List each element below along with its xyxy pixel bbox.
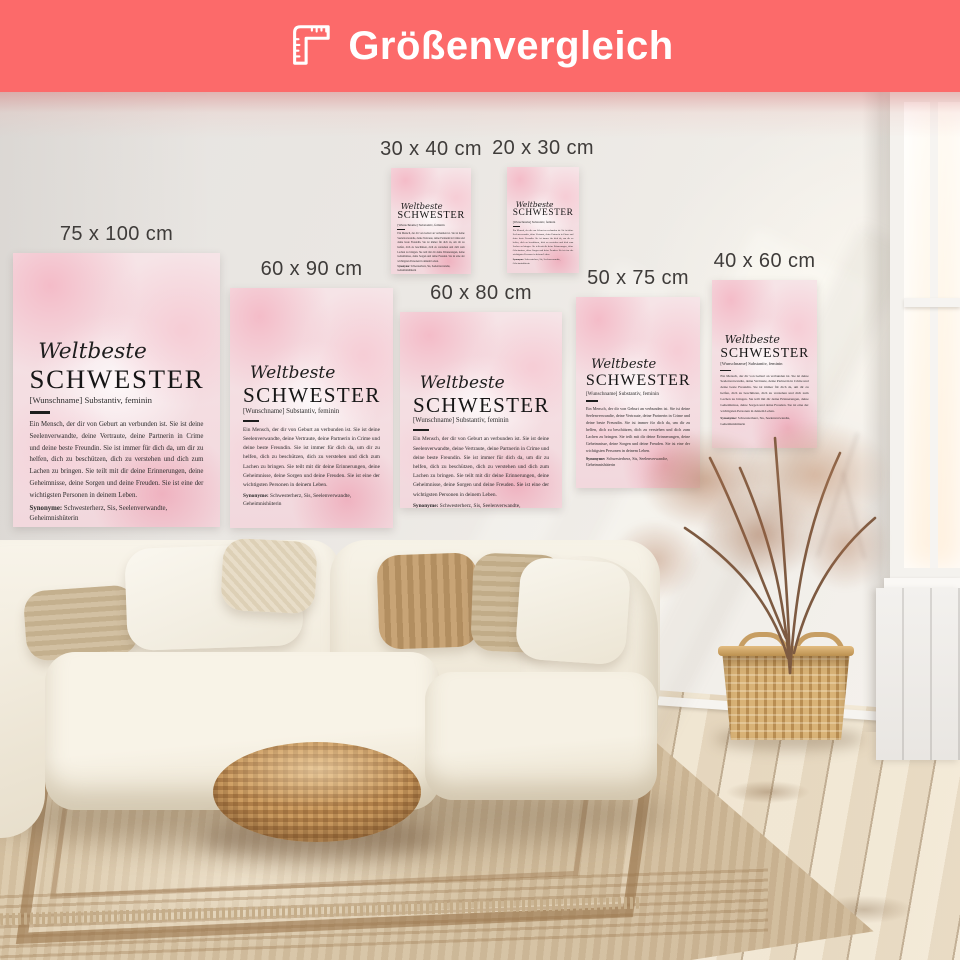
poster-20x30: Weltbeste SCHWESTER [Wunschname] Substan… [507, 167, 579, 273]
poster-definition-text: Ein Mensch, der dir von Geburt an verbun… [397, 232, 464, 264]
size-label: 20 x 30 cm [471, 137, 615, 160]
poster-main-title: SCHWESTER [720, 346, 808, 360]
poster-script-title: Weltbeste [725, 334, 809, 345]
throw-pillow-beige [470, 552, 563, 653]
size-label: 75 x 100 cm [0, 223, 324, 246]
poster-subtitle: [Wunschname] Substantiv, feminin [586, 391, 690, 397]
poster-subtitle: [Wunschname] Substantiv, feminin [413, 417, 549, 424]
poster-subtitle: [Wunschname] Substantiv, feminin [397, 223, 464, 227]
poster-synonyms: Synonyme: Schwesterherz, Sis, Seelenverw… [413, 502, 549, 508]
poster-subtitle: [Wunschname] Substantiv, feminin [513, 220, 574, 224]
header-glow [0, 92, 960, 138]
header-bar: Größenvergleich [0, 0, 960, 92]
poster-definition-text: Ein Mensch, der dir von Geburt an verbun… [30, 419, 204, 501]
poster-main-title: SCHWESTER [397, 211, 464, 222]
page-title: Größenvergleich [348, 24, 673, 69]
poster-synonyms: Synonyme: Schwesterherz, Sis, Seelenverw… [30, 504, 204, 524]
poster-definition-text: Ein Mensch, der dir von Geburt an verbun… [413, 435, 549, 499]
folding-ruler-icon [286, 19, 332, 74]
poster-synonyms: Synonyme: Schwesterherz, Sis, Seelenverw… [513, 258, 574, 265]
poster-60x90: Weltbeste SCHWESTER [Wunschname] Substan… [230, 288, 393, 528]
poster-script-title: Weltbeste [516, 201, 573, 209]
poster-script-title: Weltbeste [250, 365, 380, 382]
throw-pillow-cream [220, 538, 318, 615]
throw-pillow-caramel [376, 552, 479, 649]
size-label: 40 x 60 cm [660, 250, 870, 273]
throw-pillow-beige [23, 584, 140, 662]
poster-divider [243, 420, 259, 422]
poster-30x40: Weltbeste SCHWESTER [Wunschname] Substan… [391, 168, 471, 274]
poster-60x80: Weltbeste SCHWESTER [Wunschname] Substan… [400, 312, 562, 508]
poster-divider [397, 229, 405, 230]
poster-divider [513, 226, 520, 227]
poster-divider [413, 429, 429, 431]
poster-main-title: SCHWESTER [513, 209, 574, 219]
window-mullion [904, 298, 960, 307]
sofa-backrest [0, 540, 340, 710]
throw-pillow-white [124, 543, 303, 651]
poster-75x100: Weltbeste SCHWESTER [Wunschname] Substan… [13, 253, 220, 527]
poster-synonyms: Synonyme: Schwesterherz, Sis, Seelenverw… [243, 492, 380, 508]
poster-subtitle: [Wunschname] Substantiv, feminin [30, 395, 204, 405]
poster-definition-text: Ein Mensch, der dir von Geburt an verbun… [513, 229, 574, 258]
poster-script-title: Weltbeste [38, 341, 203, 363]
poster-main-title: SCHWESTER [30, 365, 204, 393]
size-comparison-mockup: Größenvergleich 75 x 100 cm Weltbeste SC… [0, 0, 960, 960]
rattan-pouf [213, 742, 421, 842]
poster-script-title: Weltbeste [420, 375, 549, 392]
dried-plant [590, 398, 910, 678]
poster-script-title: Weltbeste [591, 358, 690, 371]
poster-main-title: SCHWESTER [413, 394, 549, 416]
poster-subtitle: [Wunschname] Substantiv, feminin [720, 361, 808, 366]
poster-main-title: SCHWESTER [586, 373, 690, 390]
poster-synonyms: Synonyme: Schwesterherz, Sis, Seelenverw… [397, 265, 464, 273]
poster-main-title: SCHWESTER [243, 384, 380, 406]
poster-script-title: Weltbeste [401, 202, 465, 210]
poster-divider [30, 411, 51, 414]
poster-definition-text: Ein Mensch, der dir von Geburt an verbun… [243, 426, 380, 491]
poster-subtitle: [Wunschname] Substantiv, feminin [243, 408, 380, 415]
window-mullion [930, 102, 938, 568]
poster-divider [720, 370, 731, 371]
